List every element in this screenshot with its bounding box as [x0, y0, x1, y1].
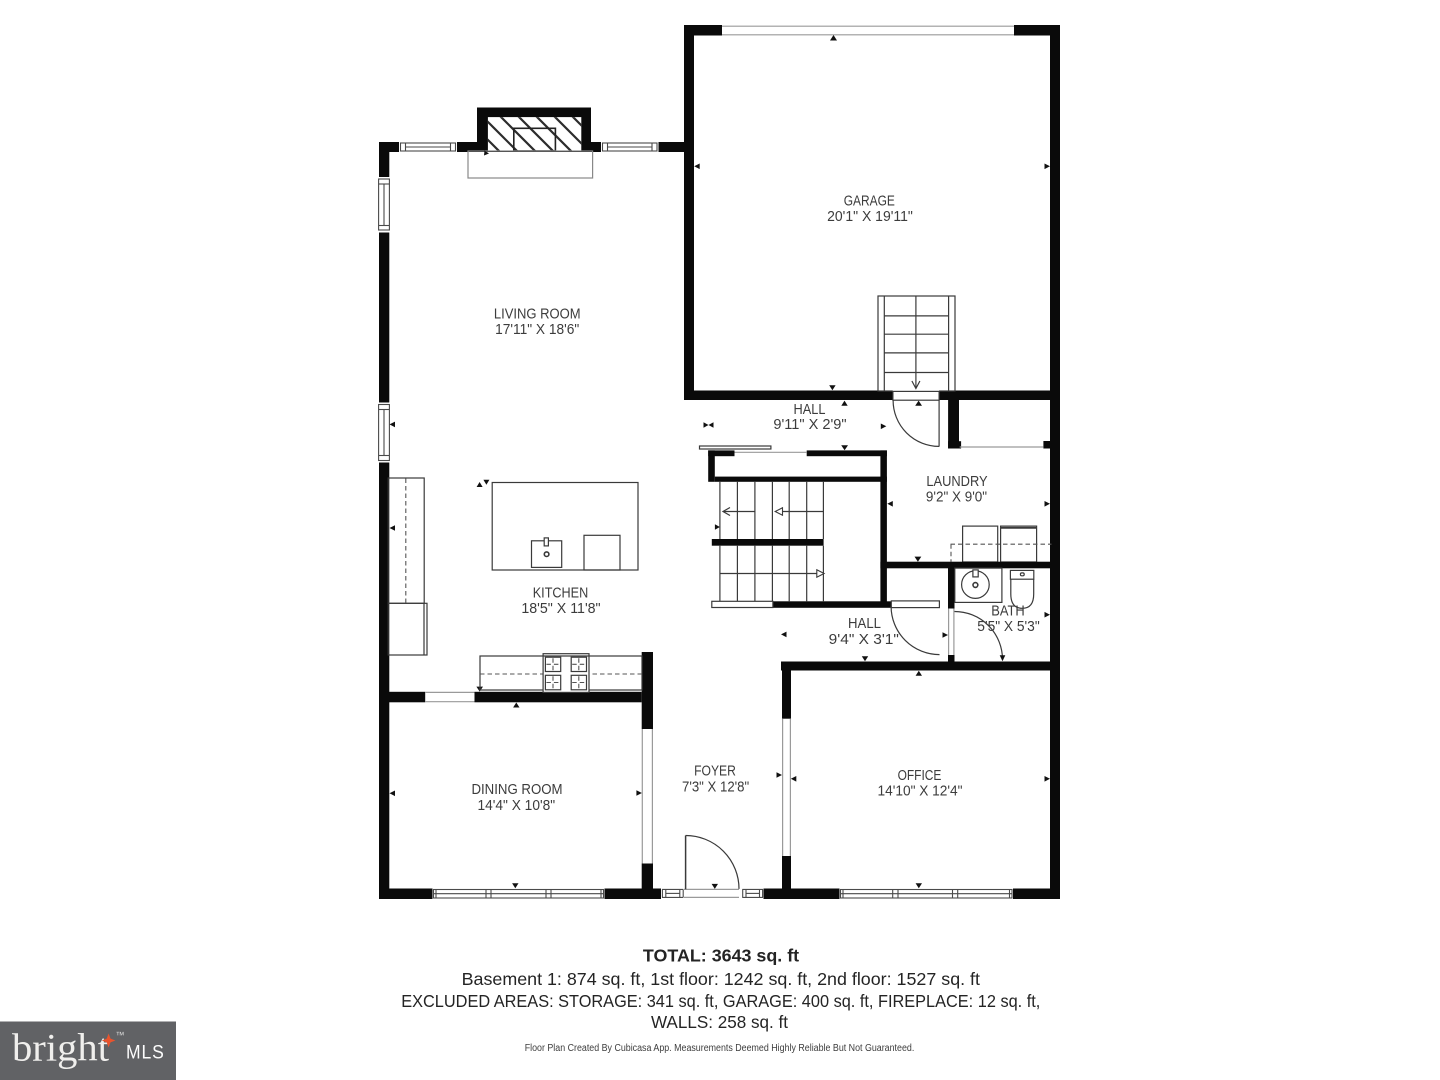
- svg-text:DINING ROOM: DINING ROOM: [471, 781, 562, 798]
- svg-text:bright: bright: [12, 1027, 109, 1070]
- svg-text:MLS: MLS: [126, 1043, 165, 1064]
- svg-text:OFFICE: OFFICE: [898, 767, 942, 784]
- svg-text:GARAGE: GARAGE: [844, 192, 895, 209]
- svg-text:KITCHEN: KITCHEN: [533, 585, 589, 602]
- svg-text:20'1" X 19'11": 20'1" X 19'11": [827, 208, 913, 225]
- svg-text:7'3" X 12'8": 7'3" X 12'8": [682, 779, 749, 796]
- svg-text:LIVING ROOM: LIVING ROOM: [494, 305, 581, 322]
- svg-text:EXCLUDED AREAS: STORAGE: 341 s: EXCLUDED AREAS: STORAGE: 341 sq. ft, GAR…: [401, 991, 1040, 1011]
- svg-text:TOTAL: 3643 sq. ft: TOTAL: 3643 sq. ft: [643, 946, 799, 966]
- svg-text:HALL: HALL: [848, 615, 881, 632]
- svg-text:Floor Plan Created By Cubicasa: Floor Plan Created By Cubicasa App. Meas…: [525, 1043, 915, 1054]
- svg-text:9'11" X 2'9": 9'11" X 2'9": [773, 416, 846, 433]
- svg-text:18'5" X 11'8": 18'5" X 11'8": [521, 600, 600, 617]
- svg-text:WALLS: 258 sq. ft: WALLS: 258 sq. ft: [651, 1012, 788, 1032]
- svg-text:LAUNDRY: LAUNDRY: [926, 473, 987, 490]
- svg-text:5'5" X 5'3": 5'5" X 5'3": [977, 618, 1039, 635]
- svg-text:BATH: BATH: [991, 603, 1025, 620]
- svg-text:9'4" X 3'1": 9'4" X 3'1": [829, 631, 899, 648]
- svg-text:FOYER: FOYER: [694, 762, 736, 779]
- svg-text:9'2" X 9'0": 9'2" X 9'0": [926, 489, 987, 506]
- svg-text:Basement 1: 874 sq. ft, 1st fl: Basement 1: 874 sq. ft, 1st floor: 1242 …: [462, 969, 981, 989]
- svg-text:14'10" X 12'4": 14'10" X 12'4": [878, 783, 963, 800]
- svg-text:14'4" X 10'8": 14'4" X 10'8": [478, 797, 556, 814]
- svg-text:17'11" X 18'6": 17'11" X 18'6": [495, 321, 579, 338]
- svg-text:™: ™: [116, 1030, 125, 1040]
